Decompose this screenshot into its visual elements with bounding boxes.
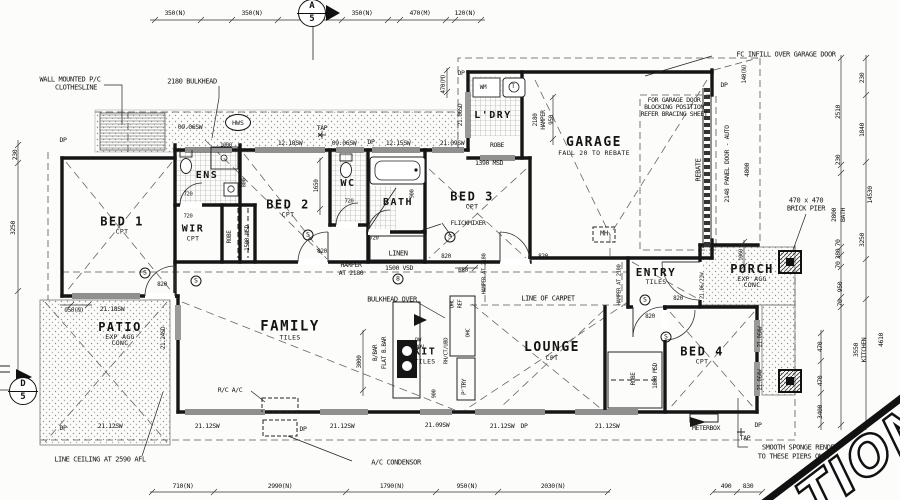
plan-label: 3000 xyxy=(357,356,363,369)
dimension-label: 120(N) xyxy=(454,10,475,17)
room-label: GARAGEFALL 20 TO REBATE xyxy=(558,136,630,156)
room-finish: TILES xyxy=(636,278,677,285)
plan-label: 21.06/21W xyxy=(700,273,706,299)
room-name: WIR xyxy=(182,224,205,235)
room-label: WIRCPT xyxy=(182,224,205,241)
plan-label: 09.06SW xyxy=(178,124,203,131)
room-label: LOUNGECPT xyxy=(524,341,580,361)
room-label: FAMILYTILES xyxy=(260,319,320,341)
dimension-label: 230 xyxy=(835,155,842,166)
dimension-label: 470 xyxy=(817,342,824,353)
plan-label: REF xyxy=(458,300,464,309)
room-name: BED 1 xyxy=(100,215,144,228)
plan-label: 1650 xyxy=(314,180,320,193)
room-name: ENTRY xyxy=(636,267,677,279)
dimension-label: 350(N) xyxy=(164,10,185,17)
plan-label: FLICKMIXER xyxy=(450,220,485,227)
plan-label: P'TRY xyxy=(462,379,468,395)
plan-label: 2180 BULKHEAD xyxy=(167,79,217,86)
plan-label: 1800 MSD xyxy=(653,363,659,389)
room-label: BED 2CPT xyxy=(266,198,310,217)
room-finish: CPT xyxy=(266,211,310,218)
plan-label: 1500 MSD xyxy=(245,225,251,251)
plan-label: TAP xyxy=(317,125,328,132)
dimension-label: 380 xyxy=(835,249,842,260)
plan-label: CLOTHESLINE xyxy=(55,85,97,92)
dimension-label: 4610 xyxy=(878,333,885,347)
hws-unit: HWS xyxy=(225,114,251,131)
plan-label: DP xyxy=(299,426,306,433)
plan-label: WALL MOUNTED P/C xyxy=(39,77,100,84)
section-marker-d-letter: D xyxy=(10,380,36,389)
dimension-label: 2510 xyxy=(835,105,842,119)
plan-label: 12.18SW xyxy=(278,140,303,147)
dimension-label: 1840 xyxy=(859,123,866,137)
room-label: BATH xyxy=(383,198,413,209)
plan-label: 820 xyxy=(317,249,327,255)
section-marker-a-letter: A xyxy=(299,2,325,11)
plan-label: MH xyxy=(600,231,608,238)
dimension-label: 70 xyxy=(835,239,842,246)
dimension-label: 950 xyxy=(837,282,844,293)
room-label: PATIOEXP AGGCONC xyxy=(98,321,142,347)
room-label: BED 4CPT xyxy=(680,345,724,364)
plan-label: WM xyxy=(480,85,486,91)
room-name: ENS xyxy=(196,171,219,182)
plan-label: HAMPER xyxy=(541,110,547,129)
plan-label: 820 xyxy=(645,314,655,320)
plan-label: AT 2180 xyxy=(339,270,364,277)
plan-label: RH/CT/UBD xyxy=(444,338,450,364)
plan-label: ROBE xyxy=(490,142,504,149)
plan-label: 800 xyxy=(242,179,248,188)
dimension-label: 350(N) xyxy=(351,10,372,17)
room-name: LOUNGE xyxy=(524,341,580,355)
clothesline xyxy=(100,113,165,150)
switch-marker: S xyxy=(661,332,672,343)
plan-label: 1060 xyxy=(739,249,745,261)
dimension-label: 470 xyxy=(817,376,824,387)
room-finish: FALL 20 TO REBATE xyxy=(558,149,630,156)
plan-label: 720 xyxy=(370,236,379,242)
dimension-label: 490 xyxy=(721,483,732,490)
plan-label: DP xyxy=(367,139,374,146)
room-name: PORCH xyxy=(730,263,774,276)
dimension-label: 230 xyxy=(12,150,19,161)
plan-label: HAMPER AT 2180 xyxy=(482,254,488,295)
room-label: L'DRY xyxy=(474,111,512,122)
plan-label: LINE OF CARPET xyxy=(521,296,574,303)
dimension-label: 950(N) xyxy=(456,483,477,490)
room-finish: TILES xyxy=(414,358,437,365)
dimension-label: 3550 xyxy=(853,343,860,357)
plan-label: 2148 PANEL DOOR - AUTO xyxy=(724,125,731,202)
plan-label: 720 xyxy=(184,192,193,198)
floor-plan-canvas: A 5 D 5 HWS TION WALL MOUNTED P/CCLOTHES… xyxy=(0,0,900,500)
switch-marker: S xyxy=(445,232,456,243)
plan-label: HAMPER AT 2180 xyxy=(617,265,623,306)
switch-marker: S xyxy=(303,230,314,241)
plan-label: T xyxy=(511,84,514,90)
dimension-label: KITCHEN xyxy=(861,338,868,363)
room-label: BED 3CPT xyxy=(450,190,494,209)
room-label: KITTILES xyxy=(414,347,437,364)
switch-marker: S xyxy=(640,295,651,306)
plan-label: OHC xyxy=(450,300,456,309)
plan-label: 21.09SW xyxy=(440,140,465,147)
plan-label: LINEN xyxy=(388,251,407,258)
plan-label: LINE CEILING AT 2590 AFL xyxy=(54,457,146,464)
section-marker-d-number: 5 xyxy=(10,393,36,402)
room-finish: CPT xyxy=(182,235,205,242)
dimension-label: 230 xyxy=(859,73,866,84)
plan-label: B/BAR xyxy=(373,345,379,361)
plan-label: 21.06SD xyxy=(458,104,464,127)
plan-label: REBATE xyxy=(696,159,703,182)
plan-label: A/C CONDENSOR xyxy=(371,460,421,467)
plan-label: 820 xyxy=(538,254,548,260)
plan-label: REFER BRACING SHEET xyxy=(641,111,708,118)
plan-label: TO THESE PIERS ONLY xyxy=(758,454,830,461)
switch-marker: 8 xyxy=(393,274,404,285)
plan-label: METERBOX xyxy=(692,425,720,432)
dimension-label: 3400 xyxy=(817,405,824,419)
plan-label: 21.06AW xyxy=(758,370,764,390)
plan-label: 4800 xyxy=(744,163,751,177)
dimension-label: BATH xyxy=(840,208,847,222)
plan-label: SMOOTH SPONGE RENDER xyxy=(762,445,838,452)
dimension-label: 2030(N) xyxy=(541,483,566,490)
plan-label: DP xyxy=(59,137,66,144)
plan-label: 1000 xyxy=(220,143,232,149)
plan-label: 21.12SW xyxy=(490,423,515,430)
plan-label: 820 xyxy=(441,254,451,260)
plan-label: DP xyxy=(720,82,727,89)
room-finish: CPT xyxy=(100,228,144,235)
plan-label: 09.06SW xyxy=(332,140,357,147)
room-name: FAMILY xyxy=(260,319,320,334)
plan-label: HAMPER xyxy=(340,262,361,269)
room-label: PORCHEXP AGGCONC xyxy=(730,263,774,289)
plan-label: 470(M) xyxy=(441,74,447,93)
room-name: BED 4 xyxy=(680,345,724,358)
switch-marker: S xyxy=(140,268,151,279)
dimension-label: 710(N) xyxy=(172,483,193,490)
room-finish: CONC xyxy=(730,282,774,289)
switch-marker: S xyxy=(191,276,202,287)
section-marker-a: A 5 xyxy=(298,0,326,27)
dimension-label: 3250 xyxy=(10,221,17,235)
plan-label: 140(N) xyxy=(742,64,748,83)
room-name: BATH xyxy=(383,198,413,209)
dimension-label: 350(N) xyxy=(241,10,262,17)
room-label: ENS xyxy=(196,171,219,182)
dimension-label: 3250 xyxy=(859,233,866,247)
plan-label: 21.12SW xyxy=(195,423,220,430)
plan-label: DP xyxy=(520,423,527,430)
dimension-label: 2990(N) xyxy=(268,483,293,490)
plan-label: 900 xyxy=(432,390,438,399)
plan-label: OHC xyxy=(466,329,472,338)
plan-label: 470 x 470 xyxy=(789,198,823,205)
plan-label: 950 xyxy=(549,115,555,125)
room-name: PATIO xyxy=(98,321,142,334)
plan-label: 720 xyxy=(184,214,193,220)
plan-label: 720 xyxy=(345,199,354,205)
plan-label: ROBE xyxy=(631,373,637,386)
plan-label: 21.09SW xyxy=(425,422,450,429)
section-marker-d: D 5 xyxy=(9,377,37,405)
room-label: WC xyxy=(340,179,355,190)
dimension-label: 70 xyxy=(835,261,842,268)
dimension-label: 1790(N) xyxy=(380,483,405,490)
plan-label: FLAT B.BAR xyxy=(382,337,388,369)
plan-label: DP xyxy=(457,70,464,77)
plan-label: 21.12SW xyxy=(595,423,620,430)
plan-label: 12.15SW xyxy=(386,140,411,147)
plan-label: 21.18SW xyxy=(100,306,125,313)
dimension-label: 70 xyxy=(837,299,844,306)
plan-label: 1390 MSD xyxy=(475,160,503,167)
plan-label: 21.12SW xyxy=(330,423,355,430)
plan-label: DW xyxy=(415,338,421,344)
plan-label: BRICK PIER xyxy=(787,206,825,213)
plan-label: 21.06AW xyxy=(758,327,764,347)
plan-label: DP xyxy=(754,422,761,429)
plan-label: 820 xyxy=(673,296,683,302)
room-name: KIT xyxy=(414,347,437,358)
dimension-label: 2800 xyxy=(831,208,838,222)
room-name: L'DRY xyxy=(474,111,512,122)
room-name: WC xyxy=(340,179,355,190)
section-marker-a-number: 5 xyxy=(299,15,325,24)
plan-linework xyxy=(0,0,900,500)
plan-label: 950(N) xyxy=(64,308,83,314)
room-name: BED 2 xyxy=(266,198,310,211)
dimension-label: 470(M) xyxy=(409,10,430,17)
plan-label: FC INFILL OVER GARAGE DOOR xyxy=(736,52,835,59)
room-finish: TILES xyxy=(260,334,320,341)
plan-label: 1500 VSD xyxy=(385,265,413,272)
hws-label: HWS xyxy=(232,119,244,127)
room-label: ENTRYTILES xyxy=(636,267,677,285)
room-label: BED 1CPT xyxy=(100,215,144,234)
plan-label: 650 xyxy=(458,268,468,274)
plan-label: R/C A/C xyxy=(218,387,243,394)
plan-label: ROBE xyxy=(227,231,233,244)
plan-label: 21.12SW xyxy=(98,423,123,430)
plan-label: 820 xyxy=(157,282,167,288)
dimension-label: 14530 xyxy=(867,186,874,204)
plan-label: BULKHEAD OVER xyxy=(367,297,417,304)
room-finish: CPT xyxy=(524,354,580,361)
plan-label: DP xyxy=(59,425,66,432)
room-finish: CPT xyxy=(450,203,494,210)
plan-label: 21.24SD xyxy=(161,327,167,350)
plan-label: 2180 xyxy=(533,114,539,127)
room-name: GARAGE xyxy=(558,136,630,150)
dimension-label: 830 xyxy=(743,483,754,490)
room-finish: CPT xyxy=(680,358,724,365)
plan-label: TAP xyxy=(740,435,751,442)
room-name: BED 3 xyxy=(450,190,494,203)
room-finish: CONC xyxy=(98,340,142,347)
